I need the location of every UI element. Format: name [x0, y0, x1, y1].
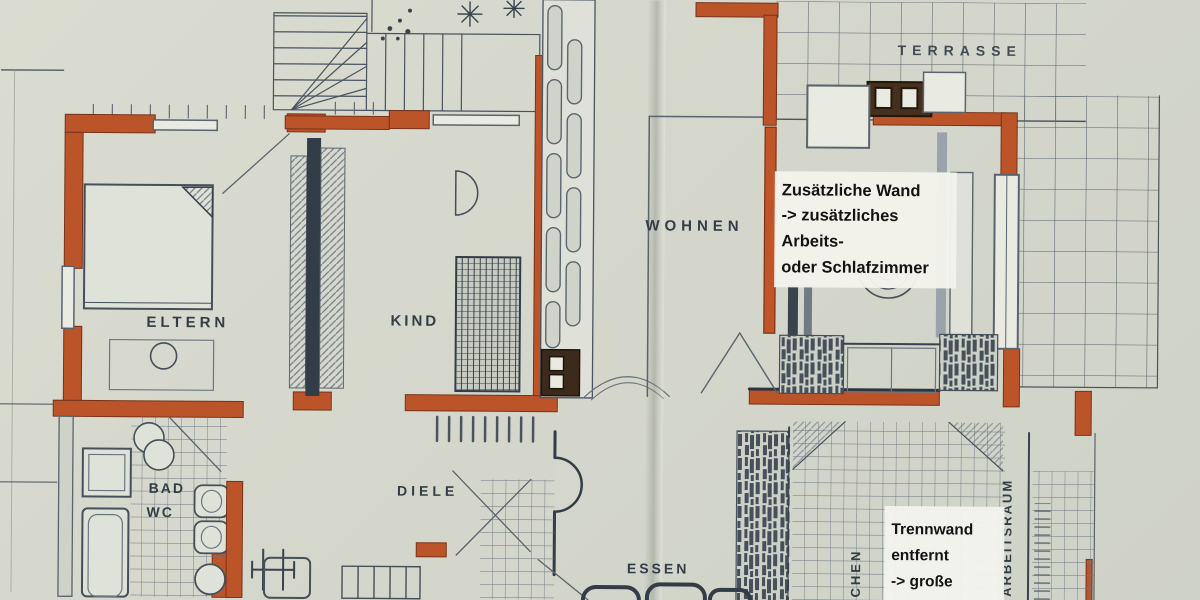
entry-tiles — [480, 479, 555, 600]
room-label-wohnen: WOHNEN — [645, 217, 743, 235]
dining-table — [583, 584, 750, 600]
annotation-removed-wall: Trennwand entfernt -> große Küche — [884, 506, 1005, 600]
furniture — [264, 558, 310, 598]
room-label-wc: WC — [146, 504, 173, 520]
neighbour-wall-line — [11, 70, 15, 592]
door-swing — [739, 333, 777, 393]
wall-niche — [555, 458, 582, 512]
annotation-line: entfernt — [891, 547, 949, 564]
room-diele: DIELE — [264, 430, 589, 600]
annotation-additional-wall: Zusätzliche Wand -> zusätzliches Arbeits… — [774, 171, 957, 288]
room-eltern: ELTERN — [83, 132, 289, 390]
room-label-kind: KIND — [390, 313, 439, 330]
door-swing — [223, 133, 289, 193]
wall-stub — [788, 285, 798, 339]
arbeitsraum-zone: ARBEITSRAUM — [999, 433, 1095, 600]
ladder-hatch — [1034, 503, 1051, 600]
room-label-essen: ESSEN — [627, 560, 690, 576]
closet-wall — [289, 138, 345, 396]
annotation-line: Arbeits- — [781, 232, 843, 250]
staircase — [273, 0, 540, 118]
cellar-stairs — [342, 566, 420, 599]
cupboard — [939, 334, 997, 390]
kitchen-wall-units — [736, 431, 789, 600]
door-swing — [456, 171, 478, 215]
wall-line — [649, 116, 767, 117]
added-wall-highlight — [764, 127, 776, 333]
room-label-terrasse: TERRASSE — [898, 42, 1022, 59]
removed-wall-dashed — [788, 427, 789, 600]
annotation-line: Zusätzliche Wand — [782, 181, 921, 200]
door-swing — [701, 333, 739, 393]
right-apartment: TERRASSE — [583, 0, 1160, 600]
terrace-tiles — [1015, 95, 1159, 388]
star-ornament — [381, 0, 524, 41]
terrace-door — [807, 85, 869, 147]
left-apartment: ELTERN KIND — [0, 0, 672, 600]
room-label-diele: DIELE — [397, 483, 458, 499]
glazing-strip — [540, 0, 595, 398]
plan-drawing: ELTERN KIND — [0, 0, 1160, 600]
annotation-line: oder Schlafzimmer — [781, 258, 929, 277]
room-kind: KIND — [390, 171, 521, 392]
shower — [83, 448, 131, 496]
dresser — [109, 340, 213, 391]
scan-fold-crease — [644, 0, 666, 600]
child-bed — [455, 257, 520, 391]
floor-plan-canvas: ELTERN KIND — [0, 0, 1200, 600]
room-label-bad: BAD — [149, 480, 185, 496]
annotation-line: -> zusätzliches — [782, 206, 899, 225]
room-label-eltern: ELTERN — [146, 314, 229, 332]
cupboard — [779, 335, 843, 393]
floor-plan-scan: ELTERN KIND — [0, 0, 1200, 600]
radiator-symbol — [252, 550, 294, 590]
side-table — [151, 343, 177, 369]
annotation-line: -> große — [891, 573, 953, 590]
bed — [84, 184, 213, 309]
annotation-line: Trennwand — [891, 521, 973, 539]
room-label-kochen: KOCHEN — [848, 549, 864, 600]
terrace-door — [923, 72, 965, 112]
chimney-block — [867, 82, 931, 116]
radiator — [437, 417, 533, 442]
highlighted-wall — [226, 481, 243, 597]
room-bad-wc: BAD WC — [58, 416, 295, 598]
